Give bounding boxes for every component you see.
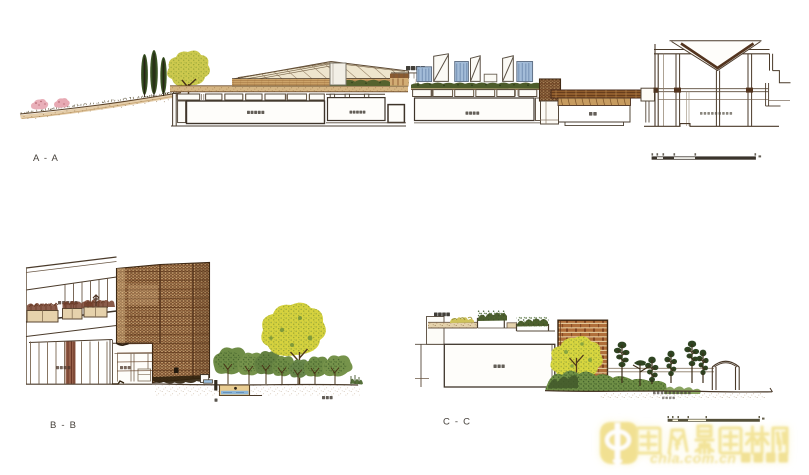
svg-text:chla.com.cn: chla.com.cn xyxy=(650,450,736,466)
svg-text:A - A: A - A xyxy=(33,153,59,164)
svg-text:B - B: B - B xyxy=(50,420,77,431)
svg-text:C - C: C - C xyxy=(443,417,471,428)
